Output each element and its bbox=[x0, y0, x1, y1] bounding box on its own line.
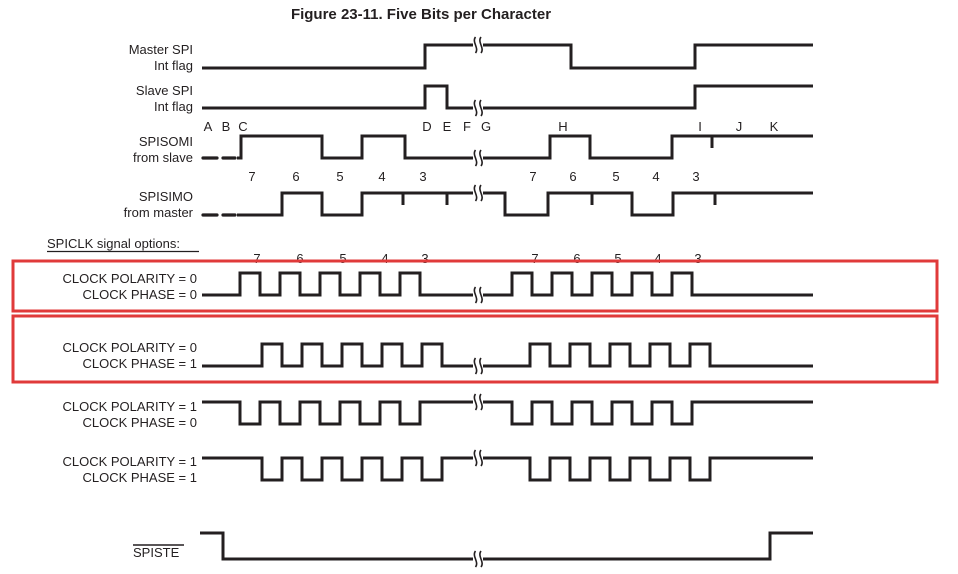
event-letter: G bbox=[481, 119, 491, 134]
signal-row-spisomi: SPISOMIfrom slave bbox=[133, 134, 813, 167]
signal-label: CLOCK POLARITY = 0 bbox=[62, 271, 197, 286]
signal-row-spiclk-cpol1-cpha1: CLOCK POLARITY = 1CLOCK PHASE = 1 bbox=[62, 449, 813, 485]
signal-label: Int flag bbox=[154, 99, 193, 114]
diagram-content: SPICLK signal options:ABCDEFGHIJK7654376… bbox=[13, 36, 937, 568]
waveform-path bbox=[202, 402, 813, 424]
signal-label: CLOCK PHASE = 0 bbox=[82, 415, 197, 430]
waveform-path bbox=[202, 86, 813, 108]
signal-row-spiclk-cpol0-cpha0: CLOCK POLARITY = 0CLOCK PHASE = 0 bbox=[62, 271, 813, 304]
event-letter: F bbox=[463, 119, 471, 134]
signal-label: CLOCK PHASE = 0 bbox=[82, 287, 197, 302]
bit-number: 3 bbox=[692, 169, 699, 184]
spiclk-options-label: SPICLK signal options: bbox=[47, 236, 199, 252]
waveform-path bbox=[202, 344, 813, 366]
signal-label: Master SPI bbox=[129, 42, 193, 57]
section-label-text: SPICLK signal options: bbox=[47, 236, 180, 251]
bit-number: 6 bbox=[296, 251, 303, 266]
signal-label: CLOCK PHASE = 1 bbox=[82, 356, 197, 371]
bit-number: 6 bbox=[569, 169, 576, 184]
discontinuity-break-icon bbox=[473, 99, 483, 117]
discontinuity-break-icon bbox=[473, 286, 483, 304]
signal-label: CLOCK POLARITY = 1 bbox=[62, 399, 197, 414]
waveform-path bbox=[202, 458, 813, 480]
event-letter: J bbox=[736, 119, 743, 134]
signal-row-spisimo: SPISIMOfrom master bbox=[124, 184, 813, 220]
signal-label: Int flag bbox=[154, 58, 193, 73]
event-letters: ABCDEFGHIJK bbox=[204, 119, 779, 134]
signal-row-slave-spi-int-flag: Slave SPIInt flag bbox=[136, 83, 813, 117]
signal-label: CLOCK POLARITY = 0 bbox=[62, 340, 197, 355]
waveform-path bbox=[237, 136, 813, 158]
signal-row-master-spi-int-flag: Master SPIInt flag bbox=[129, 36, 813, 73]
bit-number: 5 bbox=[614, 251, 621, 266]
event-letter: I bbox=[698, 119, 702, 134]
event-letter: B bbox=[222, 119, 231, 134]
signal-row-spiclk-cpol0-cpha1: CLOCK POLARITY = 0CLOCK PHASE = 1 bbox=[62, 340, 813, 375]
signal-row-spiste: SPISTE bbox=[133, 533, 813, 568]
signal-label: CLOCK POLARITY = 1 bbox=[62, 454, 197, 469]
waveform-path bbox=[200, 533, 813, 559]
discontinuity-break-icon bbox=[473, 357, 483, 375]
discontinuity-break-icon bbox=[473, 550, 483, 568]
event-letter: C bbox=[238, 119, 247, 134]
bit-number: 6 bbox=[292, 169, 299, 184]
signal-row-spiclk-cpol1-cpha0: CLOCK POLARITY = 1CLOCK PHASE = 0 bbox=[62, 393, 813, 430]
discontinuity-break-icon bbox=[473, 449, 483, 467]
bit-number: 5 bbox=[336, 169, 343, 184]
event-letter: A bbox=[204, 119, 213, 134]
discontinuity-break-icon bbox=[473, 393, 483, 411]
bit-number: 4 bbox=[381, 251, 388, 266]
signal-label: Slave SPI bbox=[136, 83, 193, 98]
bit-number: 3 bbox=[421, 251, 428, 266]
figure-title: Figure 23-11. Five Bits per Character bbox=[291, 6, 551, 23]
bit-number: 3 bbox=[419, 169, 426, 184]
waveform-path bbox=[202, 273, 813, 295]
event-letter: E bbox=[443, 119, 452, 134]
bit-number: 4 bbox=[378, 169, 385, 184]
bit-number: 7 bbox=[529, 169, 536, 184]
signal-label: from slave bbox=[133, 150, 193, 165]
bit-number: 4 bbox=[652, 169, 659, 184]
bit-number: 5 bbox=[339, 251, 346, 266]
waveform-path bbox=[202, 45, 813, 68]
signal-label: SPISTE bbox=[133, 545, 180, 560]
bit-numbers-row-0: 7654376543 bbox=[248, 169, 699, 184]
waveform-path bbox=[237, 193, 813, 215]
signal-label: SPISIMO bbox=[139, 189, 193, 204]
event-letter: K bbox=[770, 119, 779, 134]
event-letter: H bbox=[558, 119, 567, 134]
event-letter: D bbox=[422, 119, 431, 134]
bit-number: 4 bbox=[654, 251, 661, 266]
bit-number: 7 bbox=[531, 251, 538, 266]
spi-timing-diagram: Figure 23-11. Five Bits per Character SP… bbox=[0, 0, 958, 574]
discontinuity-break-icon bbox=[473, 184, 483, 202]
discontinuity-break-icon bbox=[473, 149, 483, 167]
bit-number: 6 bbox=[573, 251, 580, 266]
discontinuity-break-icon bbox=[473, 36, 483, 54]
bit-number: 7 bbox=[253, 251, 260, 266]
bit-number: 7 bbox=[248, 169, 255, 184]
signal-label: CLOCK PHASE = 1 bbox=[82, 470, 197, 485]
bit-number: 5 bbox=[612, 169, 619, 184]
signal-label: from master bbox=[124, 205, 194, 220]
signal-label: SPISOMI bbox=[139, 134, 193, 149]
bit-numbers-row-1: 7654376543 bbox=[253, 251, 701, 266]
bit-number: 3 bbox=[694, 251, 701, 266]
